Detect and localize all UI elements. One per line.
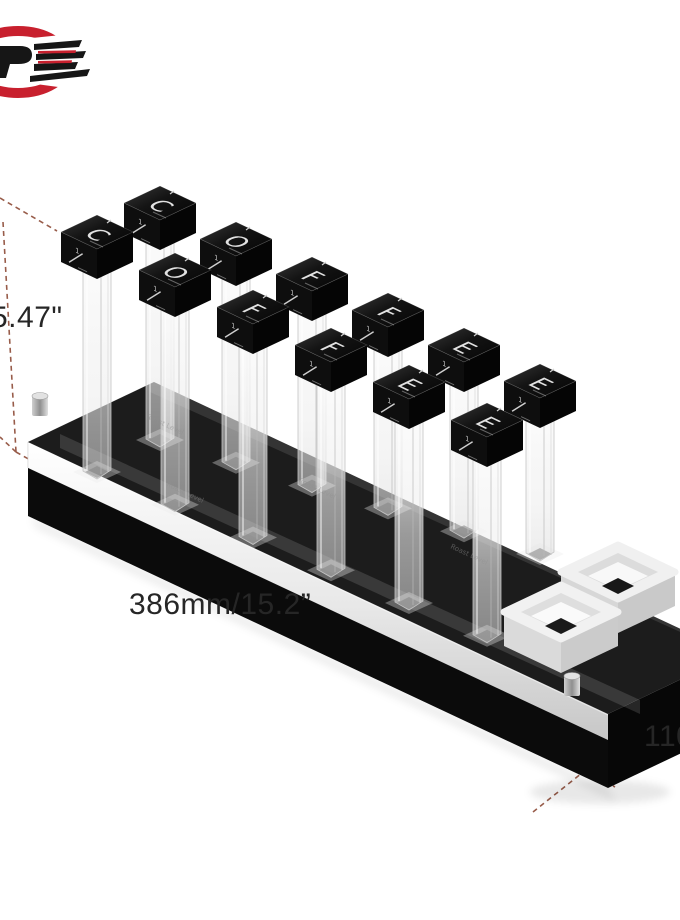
metal-post bbox=[32, 393, 48, 417]
depth-dimension-label: 110 bbox=[644, 720, 680, 754]
logo-letter-p bbox=[0, 46, 32, 78]
height-dimension-label: 5.47" bbox=[0, 301, 63, 335]
dimension-line-height-bottom-ext bbox=[0, 437, 16, 452]
product-image-canvas: C1O1F1F1E1E1C1O1F1F1E1E1 Roast Level Roa… bbox=[0, 0, 680, 920]
metal-post bbox=[564, 673, 580, 697]
length-dimension-label: 386mm/15.2” bbox=[129, 588, 311, 622]
dimension-line-height bbox=[3, 222, 16, 452]
brand-logo bbox=[0, 14, 110, 106]
dimension-line-height-top-ext bbox=[0, 198, 57, 231]
tube-and-cap: E1 bbox=[504, 364, 576, 565]
product-scene: C1O1F1F1E1E1C1O1F1F1E1E1 Roast Level Roa… bbox=[0, 0, 680, 920]
